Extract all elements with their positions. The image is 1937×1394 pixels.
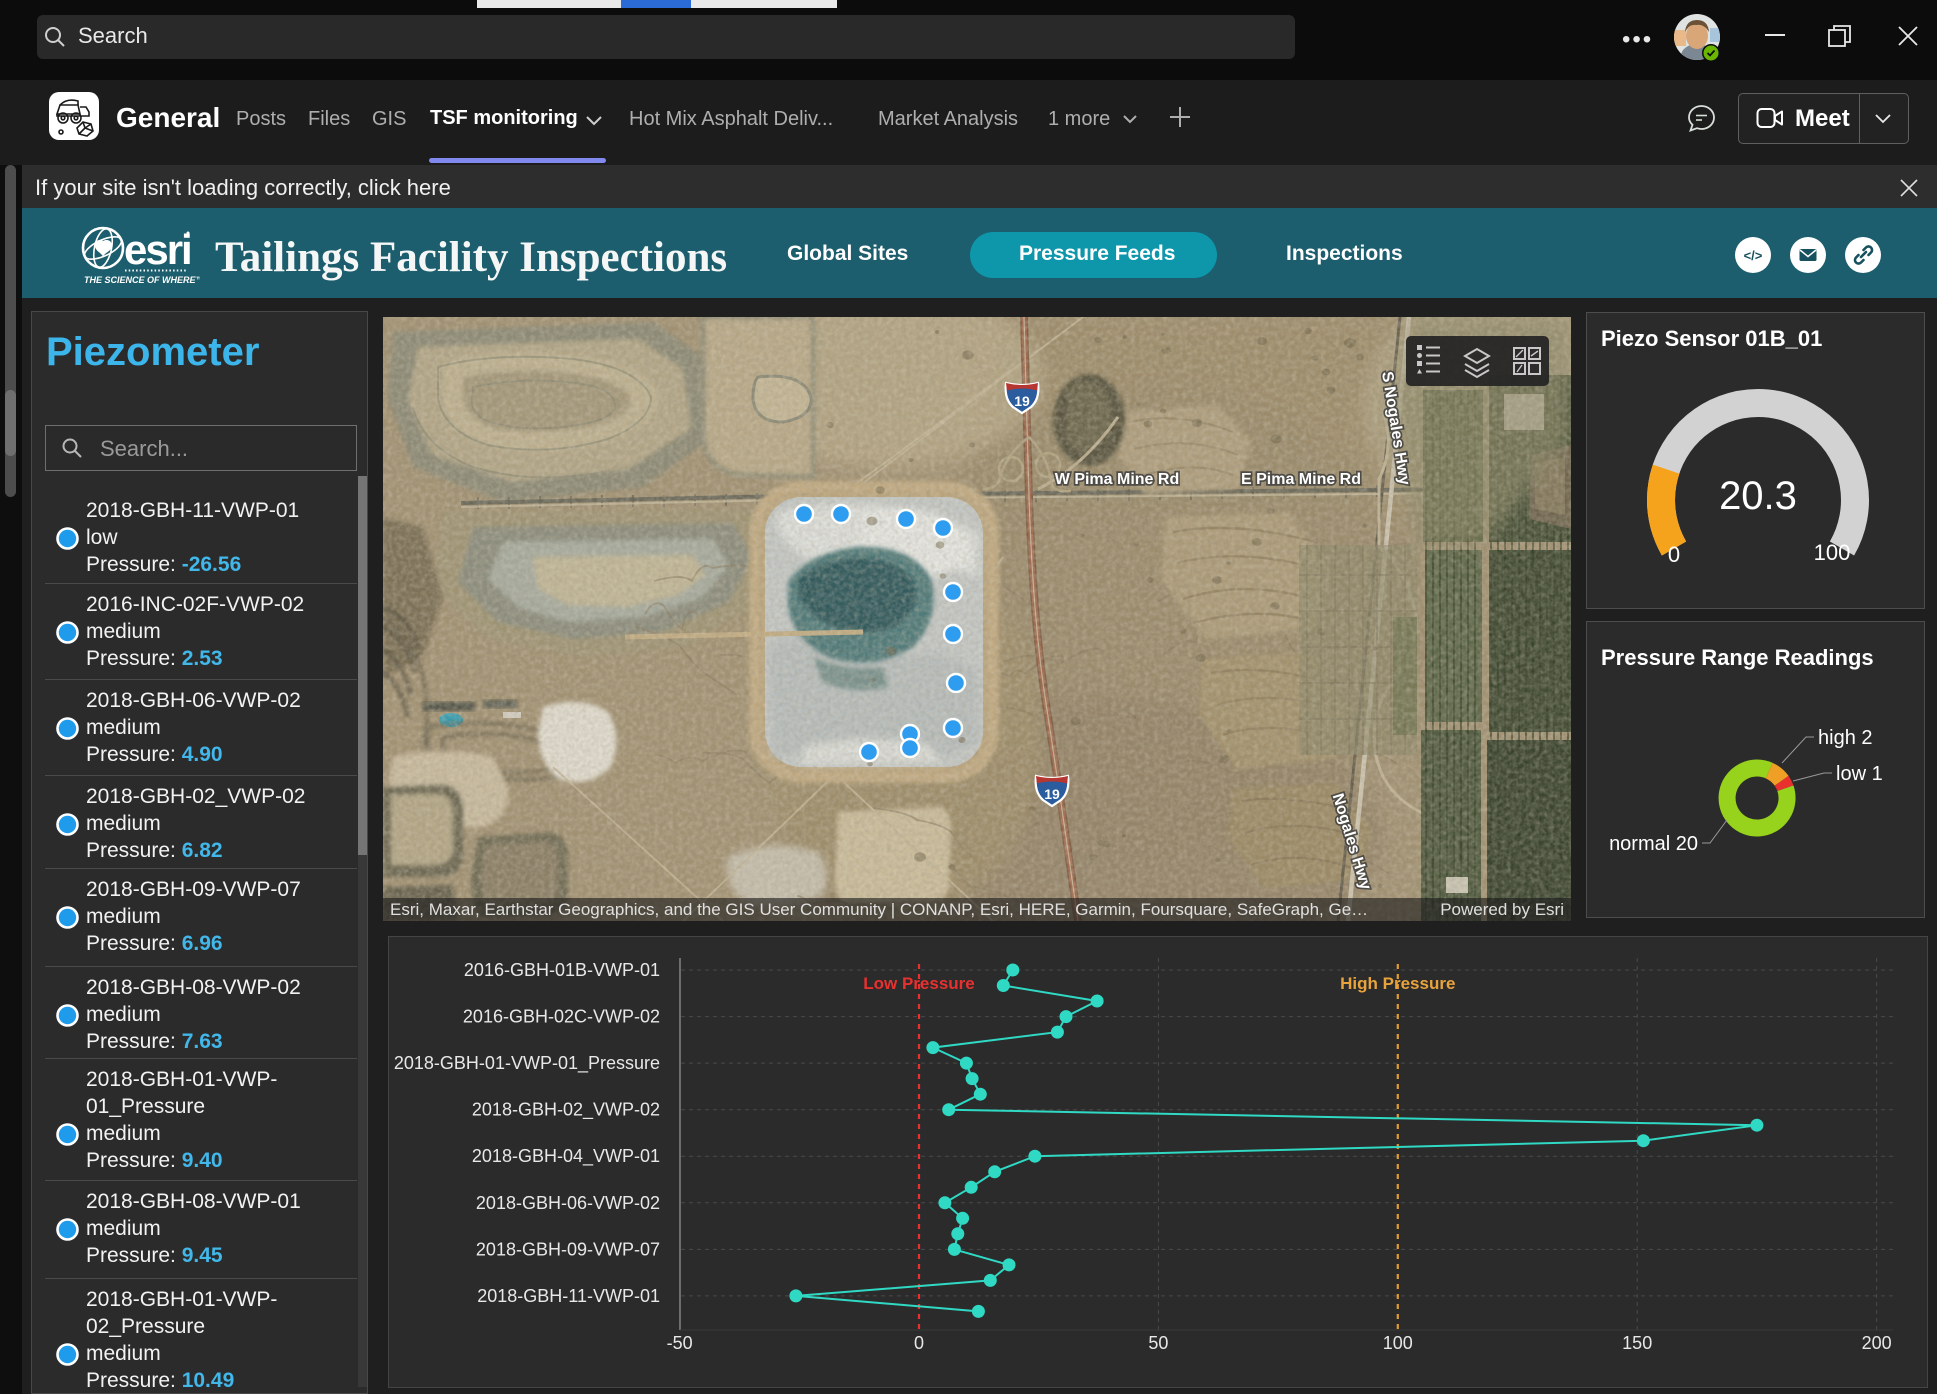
svg-text:2018-GBH-09-VWP-07: 2018-GBH-09-VWP-07 — [476, 1239, 660, 1259]
svg-text:High Pressure: High Pressure — [1340, 974, 1455, 993]
svg-text:2018-GBH-06-VWP-02: 2018-GBH-06-VWP-02 — [476, 1193, 660, 1213]
svg-text:150: 150 — [1622, 1333, 1652, 1353]
svg-text:2018-GBH-01-VWP-01_Pressure: 2018-GBH-01-VWP-01_Pressure — [394, 1053, 660, 1074]
svg-text:0: 0 — [914, 1333, 924, 1353]
svg-text:-50: -50 — [667, 1333, 693, 1353]
svg-text:Piezo Sensor 01B_01: Piezo Sensor 01B_01 — [1601, 326, 1822, 351]
svg-text:Esri, Maxar, Earthstar Geograp: Esri, Maxar, Earthstar Geographics, and … — [390, 900, 1368, 919]
svg-text:2016-GBH-02C-VWP-02: 2016-GBH-02C-VWP-02 — [463, 1007, 660, 1027]
svg-text:low 1: low 1 — [1836, 763, 1883, 785]
svg-text:100: 100 — [1814, 540, 1851, 565]
svg-text:Powered by Esri: Powered by Esri — [1440, 900, 1564, 919]
svg-text:2018-GBH-02_VWP-02: 2018-GBH-02_VWP-02 — [472, 1100, 660, 1121]
svg-text:Pressure Range Readings: Pressure Range Readings — [1601, 645, 1874, 670]
svg-text:20.3: 20.3 — [1719, 474, 1797, 518]
svg-text:THE SCIENCE OF WHERE™: THE SCIENCE OF WHERE™ — [84, 275, 200, 285]
svg-text:100: 100 — [1383, 1333, 1413, 1353]
svg-text:19: 19 — [1014, 393, 1030, 409]
svg-text:W Pima Mine Rd: W Pima Mine Rd — [1055, 471, 1179, 488]
svg-text:esri: esri — [124, 226, 191, 273]
svg-text:50: 50 — [1148, 1333, 1168, 1353]
svg-text:2018-GBH-04_VWP-01: 2018-GBH-04_VWP-01 — [472, 1146, 660, 1167]
svg-text:2018-GBH-11-VWP-01: 2018-GBH-11-VWP-01 — [477, 1286, 660, 1306]
svg-text:0: 0 — [1668, 542, 1680, 567]
svg-text:2016-GBH-01B-VWP-01: 2016-GBH-01B-VWP-01 — [464, 960, 660, 980]
svg-text:</>: </> — [1744, 248, 1763, 263]
svg-text:normal 20: normal 20 — [1609, 833, 1698, 855]
svg-text:high 2: high 2 — [1818, 727, 1873, 749]
svg-text:Low Pressure: Low Pressure — [863, 974, 975, 993]
svg-text:19: 19 — [1044, 786, 1060, 802]
svg-text:E Pima Mine Rd: E Pima Mine Rd — [1241, 471, 1361, 488]
svg-text:200: 200 — [1862, 1333, 1892, 1353]
